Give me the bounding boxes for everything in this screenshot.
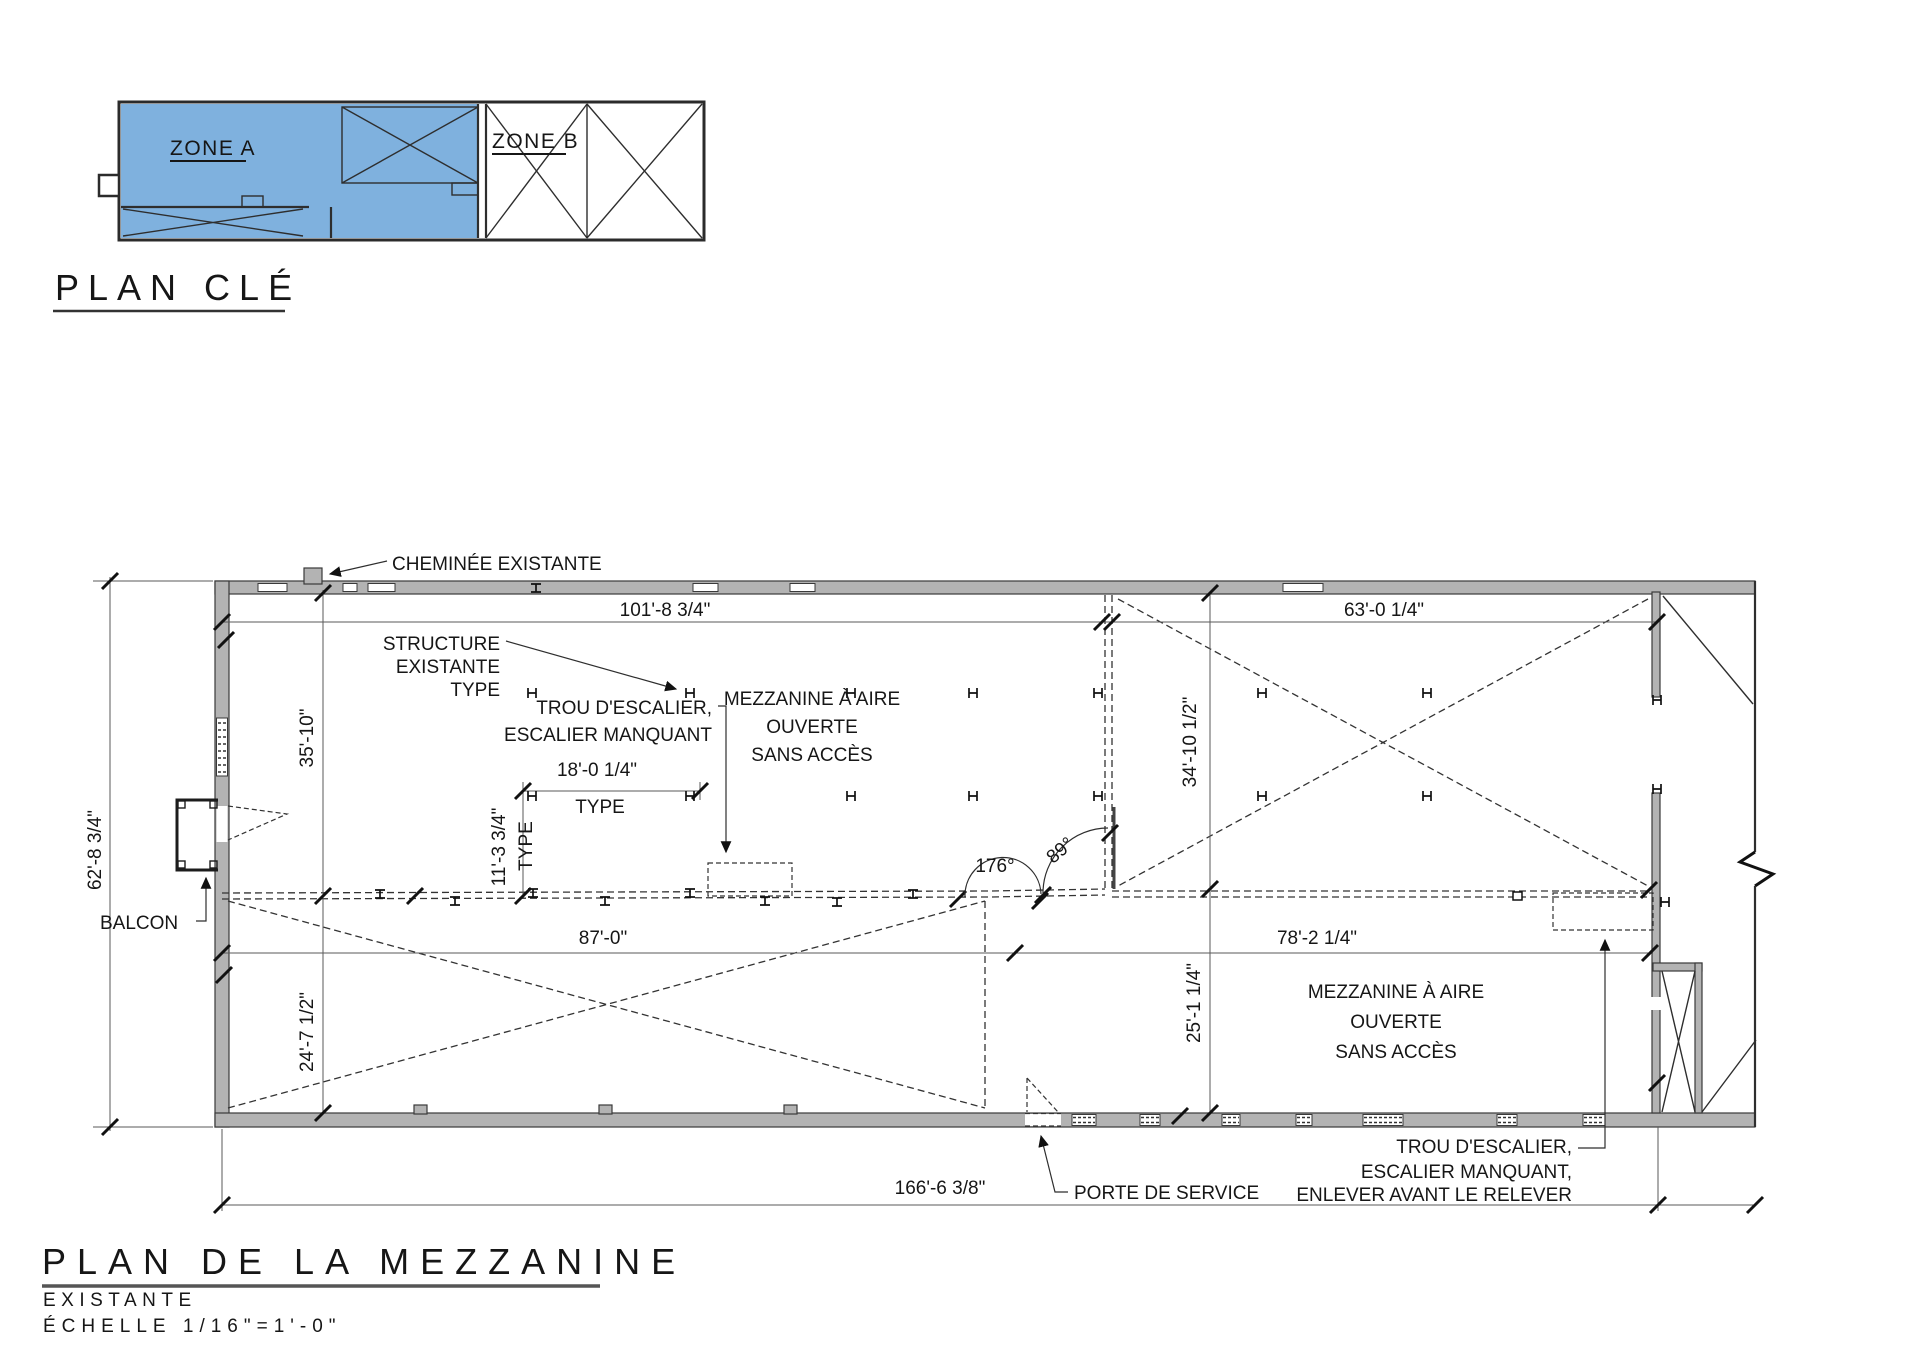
structure-label-2: EXISTANTE	[396, 657, 500, 678]
zone-a-highlight	[121, 104, 479, 238]
bottom-wall	[215, 1113, 1755, 1127]
dim-18: 18'-0 1/4"	[557, 760, 637, 781]
service-door-swing	[1027, 1078, 1058, 1112]
stair-hole-right	[1553, 893, 1653, 930]
key-plan: ZONE A ZONE B	[99, 102, 704, 240]
dashed-interior-wall	[1105, 595, 1114, 889]
column-marker-icon	[528, 688, 536, 698]
column-marker-icon	[1094, 688, 1102, 698]
column-marker-icon	[1258, 791, 1266, 801]
dim-35: 35'-10"	[297, 709, 318, 768]
shaft-x-brace	[1662, 971, 1695, 1112]
mezz-upper-label-1: MEZZANINE À AIRE	[724, 689, 900, 710]
title-block: PLAN DE LA MEZZANINE EXISTANTE ÉCHELLE 1…	[42, 1241, 686, 1337]
shaft-walls	[1650, 592, 1702, 1113]
column-marker-icon	[832, 898, 842, 906]
break-line-icon	[1740, 852, 1773, 886]
stair-upper-label-2: ESCALIER MANQUANT	[504, 725, 712, 746]
drawing-canvas: ZONE A ZONE B PLAN CLÉ	[0, 0, 1920, 1354]
angle-176-label: 176°	[975, 856, 1014, 877]
left-wall-door-opening	[217, 806, 228, 842]
porte-label: PORTE DE SERVICE	[1074, 1183, 1259, 1204]
stair-lower-label-3: ENLEVER AVANT LE RELEVER	[1296, 1185, 1572, 1206]
mezz-upper-label-2: OUVERTE	[766, 717, 858, 738]
column-marker-icon	[969, 791, 977, 801]
structure-label-1: STRUCTURE	[383, 634, 500, 655]
column-marker-icon	[1423, 688, 1431, 698]
column-marker-icon	[1094, 791, 1102, 801]
stair-lower-label-2: ESCALIER MANQUANT,	[1361, 1162, 1572, 1183]
key-plan-title: PLAN CLÉ	[55, 267, 301, 308]
sheet-scale: ÉCHELLE 1/16"=1'-0"	[43, 1316, 342, 1337]
column-marker-icon	[1258, 688, 1266, 698]
sheet-subtitle: EXISTANTE	[43, 1290, 197, 1311]
stair-upper-leader	[718, 706, 726, 852]
chimney-leader	[330, 561, 387, 574]
dim-34: 34'-10 1/2"	[1180, 697, 1201, 788]
zone-a-label: ZONE A	[170, 137, 256, 160]
mezz-upper-label-3: SANS ACCÈS	[751, 745, 872, 766]
mezzanine-edge-dashed	[222, 889, 1650, 899]
mezz-lower-label-1: MEZZANINE À AIRE	[1308, 982, 1484, 1003]
key-zone-divider	[478, 104, 486, 238]
balcon-leader	[196, 878, 206, 921]
column-marker-icon	[685, 889, 695, 897]
column-marker-icon	[528, 791, 536, 801]
edge-post	[1513, 892, 1522, 900]
stair-upper-label-1: TROU D'ESCALIER,	[536, 698, 712, 719]
stair-lower-label-1: TROU D'ESCALIER,	[1396, 1137, 1572, 1158]
porte-leader	[1041, 1136, 1068, 1192]
column-marker-icon	[847, 791, 855, 801]
structure-leader	[506, 641, 676, 689]
key-balcony	[99, 175, 119, 196]
chimney	[304, 568, 322, 584]
dim-101: 101'-8 3/4"	[620, 600, 711, 621]
dim-24: 24'-7 1/2"	[297, 992, 318, 1072]
dim-25: 25'-1 1/4"	[1184, 963, 1205, 1043]
dim-78: 78'-2 1/4"	[1277, 928, 1357, 949]
mezz-lower-label-2: OUVERTE	[1350, 1012, 1442, 1033]
service-door-opening	[1025, 1114, 1061, 1126]
column-marker-icon	[1423, 791, 1431, 801]
dim-11: 11'-3 3/4"	[489, 808, 510, 887]
dim-63: 63'-0 1/4"	[1344, 600, 1424, 621]
column-marker-icon	[686, 688, 694, 698]
balcony	[177, 800, 218, 870]
zone-b-label: ZONE B	[492, 130, 579, 153]
column-marker-icon	[375, 890, 385, 898]
top-wall	[215, 581, 1755, 594]
dim-166: 166'-6 3/8"	[895, 1178, 986, 1199]
left-wall	[215, 581, 229, 1127]
left-door-swing	[228, 806, 287, 840]
column-marker-icon	[969, 688, 977, 698]
lower-bay-diagonal	[1702, 1040, 1756, 1112]
left-wall-window	[217, 718, 228, 776]
upper-bay-diagonal	[1663, 596, 1753, 704]
column-marker-icon	[1661, 897, 1669, 907]
dim-18-type: TYPE	[575, 797, 625, 818]
chimney-label: CHEMINÉE EXISTANTE	[392, 554, 602, 575]
dim-62: 62'-8 3/4"	[85, 810, 106, 890]
mezz-lower-label-3: SANS ACCÈS	[1335, 1042, 1456, 1063]
balcon-label: BALCON	[100, 913, 178, 934]
dim-87: 87'-0"	[579, 928, 627, 949]
sheet-title: PLAN DE LA MEZZANINE	[42, 1241, 686, 1282]
dim-11-type: TYPE	[516, 821, 537, 871]
structure-label-3: TYPE	[450, 680, 500, 701]
floor-plan-sheet: ZONE A ZONE B PLAN CLÉ	[0, 0, 1920, 1354]
mezzanine-plan: 176° 89° 101'-8 3/4" 63'-0 1/4" 35'-10" …	[85, 554, 1773, 1213]
